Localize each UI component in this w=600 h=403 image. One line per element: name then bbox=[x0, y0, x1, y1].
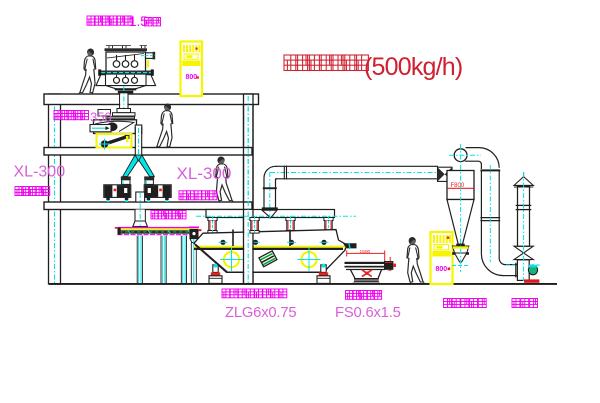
svg-text:FS0.6x1.5: FS0.6x1.5 bbox=[335, 305, 401, 321]
svg-text:(500kg/h): (500kg/h) bbox=[364, 53, 462, 81]
svg-text:ZLG6x0.75: ZLG6x0.75 bbox=[225, 305, 296, 321]
svg-text:1500: 1500 bbox=[360, 249, 371, 255]
svg-text:800: 800 bbox=[436, 266, 448, 273]
svg-text:800: 800 bbox=[186, 74, 198, 81]
svg-text:350: 350 bbox=[90, 110, 112, 125]
svg-text:XL-300: XL-300 bbox=[177, 164, 232, 183]
svg-text:XL-300: XL-300 bbox=[14, 164, 66, 181]
